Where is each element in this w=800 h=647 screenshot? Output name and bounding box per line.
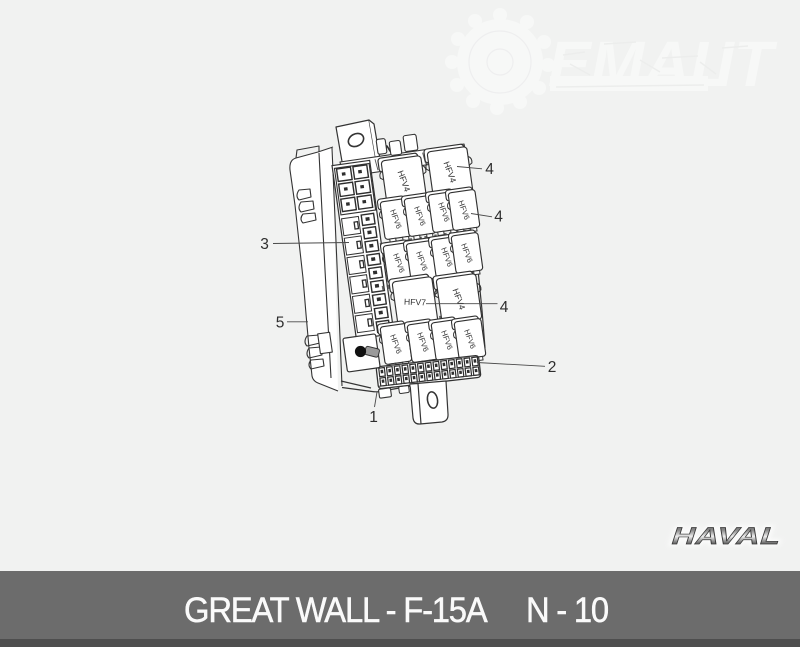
svg-text:2: 2 <box>548 359 557 376</box>
svg-text:4: 4 <box>500 299 509 316</box>
svg-text:3: 3 <box>260 236 269 253</box>
svg-text:IT: IT <box>716 28 778 100</box>
svg-text:HFV7: HFV7 <box>404 297 427 308</box>
svg-text:1: 1 <box>369 409 378 426</box>
svg-text:4: 4 <box>494 209 503 226</box>
svg-text:HAVAL: HAVAL <box>668 523 785 550</box>
svg-text:5: 5 <box>276 315 285 332</box>
svg-text:4: 4 <box>485 161 494 178</box>
